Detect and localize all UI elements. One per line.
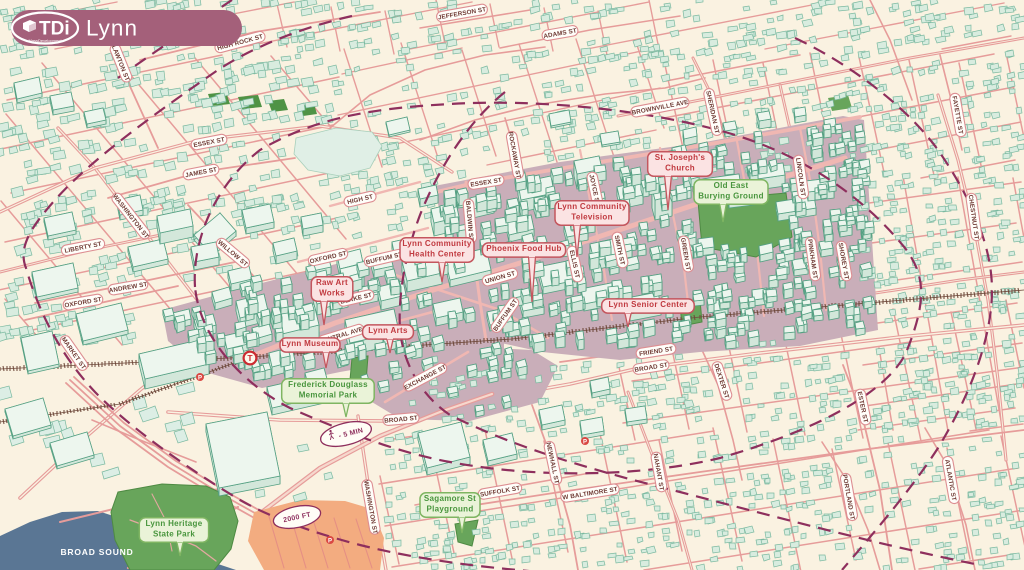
- svg-text:TDi: TDi: [39, 19, 70, 40]
- svg-text:Health Center: Health Center: [409, 249, 465, 258]
- svg-text:Lynn: Lynn: [86, 16, 138, 41]
- svg-text:MassDevelopment: MassDevelopment: [28, 38, 62, 43]
- svg-text:Playground: Playground: [426, 504, 473, 513]
- svg-text:Lynn Community: Lynn Community: [557, 202, 626, 211]
- svg-text:Television: Television: [571, 212, 613, 221]
- svg-text:Lynn Museum: Lynn Museum: [282, 339, 339, 348]
- svg-text:Works: Works: [319, 288, 345, 297]
- svg-text:Sagamore St: Sagamore St: [424, 494, 476, 503]
- svg-text:Lynn Heritage: Lynn Heritage: [146, 519, 203, 528]
- svg-text:T: T: [247, 353, 253, 363]
- svg-text:Lynn Senior Center: Lynn Senior Center: [609, 300, 688, 309]
- svg-text:St. Joseph's: St. Joseph's: [655, 153, 706, 162]
- svg-text:Lynn Arts: Lynn Arts: [368, 326, 408, 335]
- svg-text:Phoenix Food Hub: Phoenix Food Hub: [486, 244, 561, 253]
- svg-text:P: P: [583, 439, 587, 445]
- svg-text:BROAD SOUND: BROAD SOUND: [60, 547, 133, 557]
- svg-text:Memorial Park: Memorial Park: [299, 390, 358, 399]
- svg-text:Frederick Douglass: Frederick Douglass: [288, 380, 368, 389]
- svg-text:P: P: [198, 375, 202, 381]
- svg-text:Burying Ground: Burying Ground: [698, 191, 764, 200]
- svg-text:Lynn Community: Lynn Community: [402, 239, 471, 248]
- svg-text:Raw Art: Raw Art: [316, 278, 348, 287]
- svg-text:Church: Church: [665, 163, 695, 172]
- svg-text:State Park: State Park: [153, 529, 195, 538]
- svg-text:Old East: Old East: [714, 181, 749, 190]
- svg-text:P: P: [328, 538, 332, 544]
